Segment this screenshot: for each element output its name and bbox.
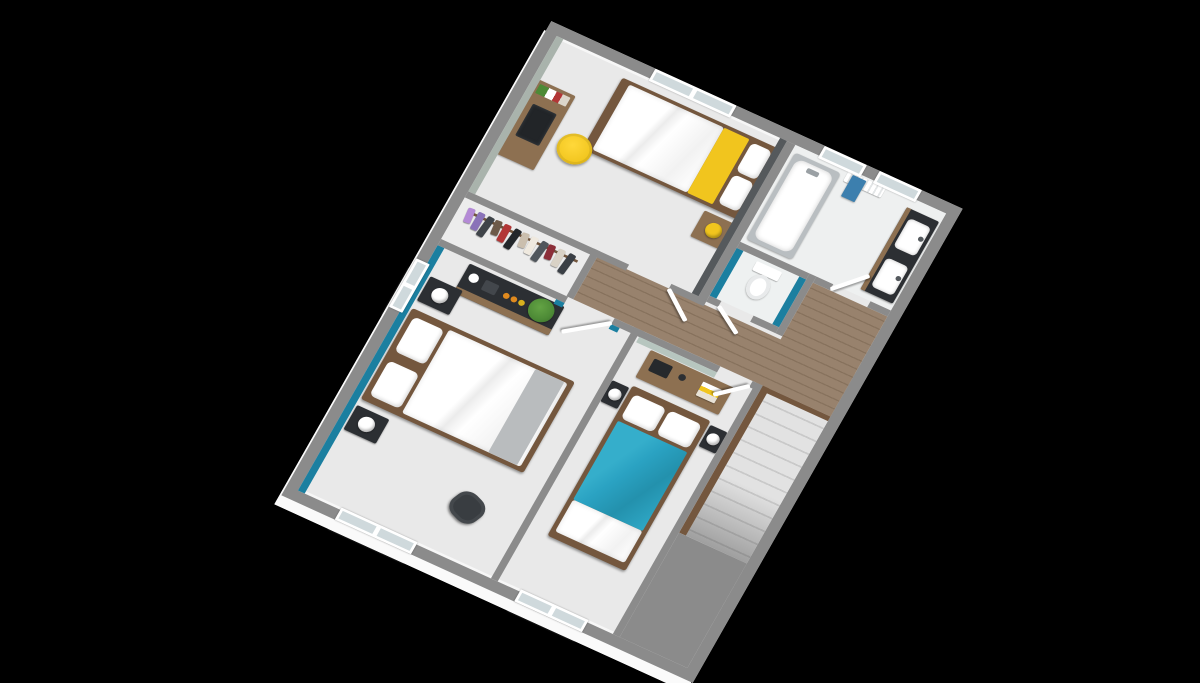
vase <box>467 272 481 285</box>
floor-plan <box>281 21 962 683</box>
white-lamp <box>428 285 451 306</box>
fruit-3 <box>517 299 526 307</box>
white-lamp <box>355 414 378 435</box>
scene <box>391 86 853 618</box>
desk-books <box>535 84 571 107</box>
double-sink-vanity <box>860 207 939 303</box>
yellow-lamp <box>702 220 725 241</box>
console-screen <box>648 358 674 379</box>
console-knickknack <box>677 373 687 382</box>
white-lamp <box>606 387 624 403</box>
basket <box>481 280 500 296</box>
black-chair <box>444 487 491 529</box>
render-canvas <box>0 0 1200 676</box>
